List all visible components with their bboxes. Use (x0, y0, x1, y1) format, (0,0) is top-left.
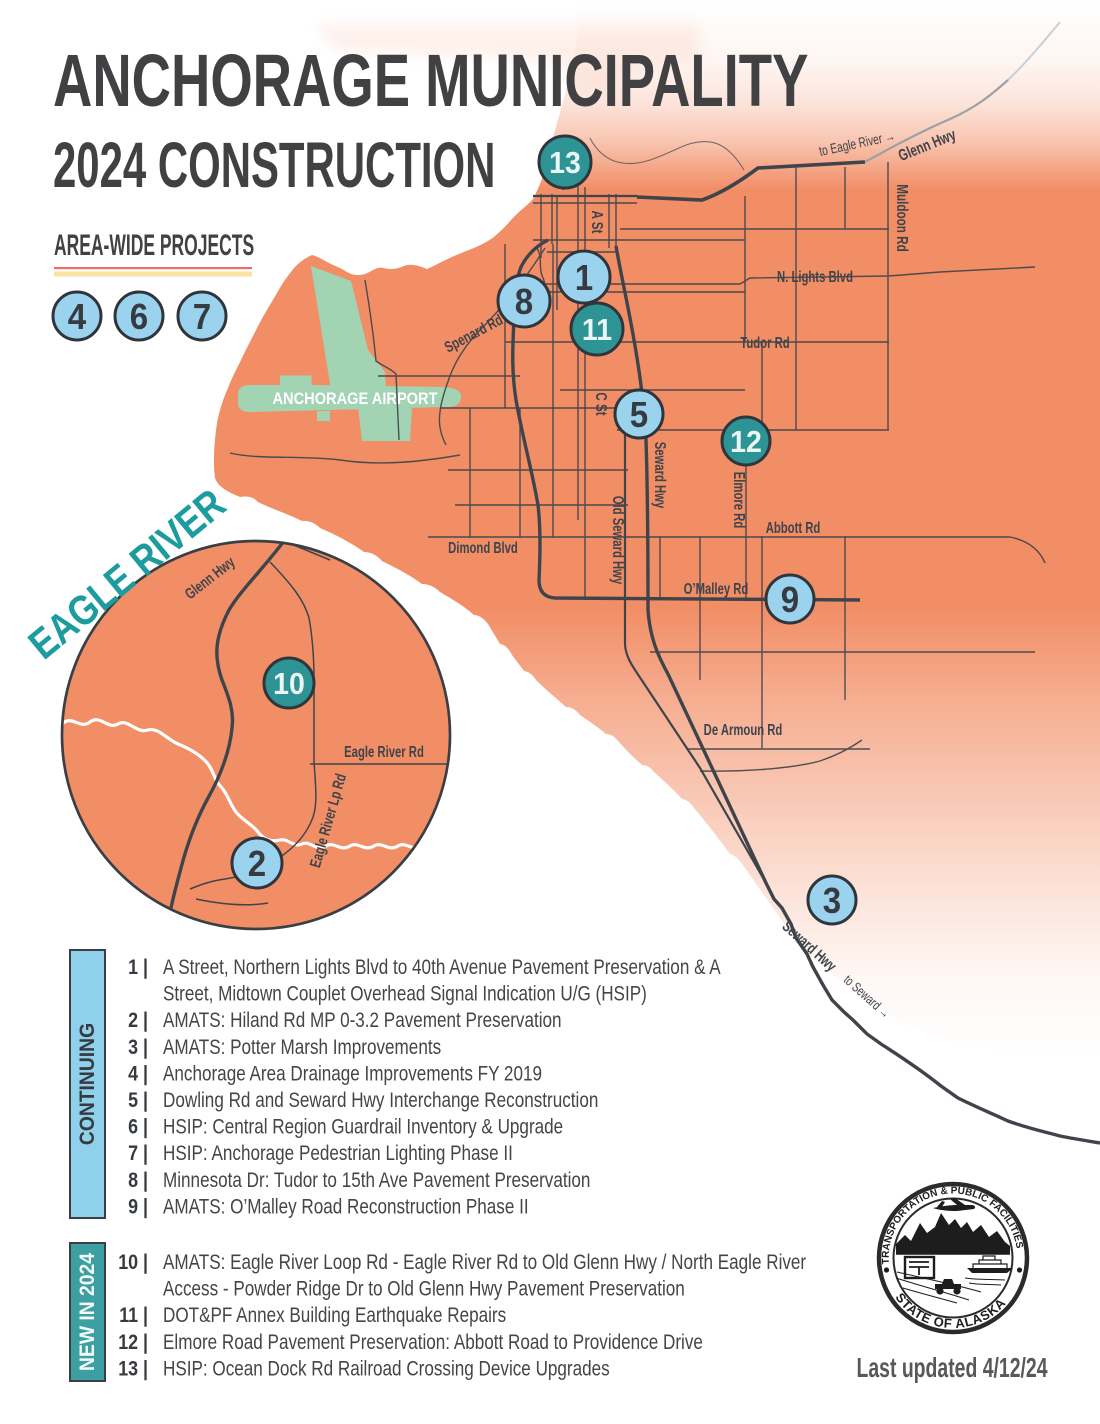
svg-text:Muldoon Rd: Muldoon Rd (894, 184, 912, 251)
svg-text:HSIP: Central Region Guardrail: HSIP: Central Region Guardrail Inventory… (163, 1116, 563, 1139)
svg-text:Minnesota Dr: Tudor to 15th Av: Minnesota Dr: Tudor to 15th Ave Pavement… (163, 1169, 590, 1192)
svg-text:O’Malley Rd: O’Malley Rd (684, 580, 749, 597)
svg-text:HSIP: Anchorage Pedestrian Lig: HSIP: Anchorage Pedestrian Lighting Phas… (163, 1143, 513, 1166)
svg-text:HSIP: Ocean Dock Rd Railroad C: HSIP: Ocean Dock Rd Railroad Crossing De… (163, 1358, 610, 1381)
svg-text:ANCHORAGE AIRPORT: ANCHORAGE AIRPORT (272, 390, 437, 408)
svg-text:1 |: 1 | (128, 956, 148, 980)
svg-text:2 |: 2 | (128, 1009, 148, 1033)
svg-text:9 |: 9 | (128, 1195, 148, 1219)
svg-text:12 |: 12 | (118, 1330, 148, 1354)
svg-text:Dimond Blvd: Dimond Blvd (448, 539, 518, 556)
svg-text:7: 7 (193, 298, 211, 338)
svg-text:6 |: 6 | (128, 1115, 148, 1139)
svg-text:13: 13 (549, 146, 581, 180)
svg-text:Access - Powder Ridge Dr to Ol: Access - Powder Ridge Dr to Old Glenn Hw… (163, 1278, 685, 1301)
svg-text:AMATS: Hiland Rd MP 0-3.2 Pave: AMATS: Hiland Rd MP 0-3.2 Pavement Prese… (163, 1010, 562, 1033)
svg-text:1: 1 (575, 259, 593, 299)
svg-text:De Armoun Rd: De Armoun Rd (704, 721, 783, 738)
svg-text:C St: C St (593, 392, 611, 416)
svg-text:A St: A St (589, 211, 607, 234)
svg-text:AMATS: Eagle River Loop Rd - E: AMATS: Eagle River Loop Rd - Eagle River… (163, 1251, 807, 1274)
svg-text:3: 3 (823, 882, 841, 922)
svg-text:4: 4 (68, 298, 87, 338)
svg-text:12: 12 (730, 425, 762, 459)
svg-text:9: 9 (781, 581, 799, 621)
svg-text:CONTINUING: CONTINUING (76, 1023, 99, 1145)
svg-text:4 |: 4 | (128, 1062, 148, 1086)
svg-text:Tudor Rd: Tudor Rd (740, 334, 789, 351)
svg-text:Eagle River Rd: Eagle River Rd (344, 743, 424, 760)
svg-text:Old Seward Hwy: Old Seward Hwy (610, 496, 627, 585)
svg-text:Dowling Rd and Seward Hwy Inte: Dowling Rd and Seward Hwy Interchange Re… (163, 1089, 598, 1112)
svg-text:5: 5 (630, 396, 648, 436)
svg-text:A Street, Northern Lights Blvd: A Street, Northern Lights Blvd to 40th A… (163, 956, 721, 979)
svg-text:Abbott Rd: Abbott Rd (766, 519, 821, 536)
svg-text:11: 11 (582, 313, 612, 347)
svg-text:Street, Midtown Couplet Overhe: Street, Midtown Couplet Overhead Signal … (163, 983, 647, 1006)
svg-text:2024 CONSTRUCTION: 2024 CONSTRUCTION (53, 130, 495, 201)
svg-text:7 |: 7 | (128, 1142, 148, 1166)
svg-text:Seward Hwy: Seward Hwy (652, 442, 669, 509)
svg-text:N. Lights Blvd: N. Lights Blvd (777, 268, 853, 285)
svg-text:10: 10 (273, 667, 305, 701)
svg-text:Last updated 4/12/24: Last updated 4/12/24 (857, 1353, 1048, 1384)
svg-text:AREA-WIDE PROJECTS: AREA-WIDE PROJECTS (54, 229, 254, 262)
svg-text:8 |: 8 | (128, 1168, 148, 1192)
svg-text:ANCHORAGE MUNICIPALITY: ANCHORAGE MUNICIPALITY (53, 39, 808, 122)
svg-text:Elmore Rd: Elmore Rd (731, 472, 748, 528)
svg-text:DOT&PF Annex Building Earthqua: DOT&PF Annex Building Earthquake Repairs (163, 1305, 506, 1328)
svg-text:10 |: 10 | (118, 1251, 148, 1275)
svg-text:3 |: 3 | (128, 1035, 148, 1059)
svg-text:NEW IN 2024: NEW IN 2024 (76, 1252, 99, 1371)
svg-text:AMATS: Potter Marsh Improvemen: AMATS: Potter Marsh Improvements (163, 1036, 441, 1059)
svg-text:Elmore Road Pavement Preservat: Elmore Road Pavement Preservation: Abbot… (163, 1331, 703, 1354)
svg-text:6: 6 (130, 298, 148, 338)
svg-text:8: 8 (515, 283, 533, 323)
svg-text:5 |: 5 | (128, 1089, 148, 1113)
svg-text:11 |: 11 | (119, 1304, 148, 1328)
svg-text:AMATS: O’Malley Road Reconstru: AMATS: O’Malley Road Reconstruction Phas… (163, 1196, 529, 1219)
svg-text:2: 2 (248, 845, 266, 885)
svg-text:Anchorage Area Drainage Improv: Anchorage Area Drainage Improvements FY … (163, 1063, 542, 1086)
svg-text:13 |: 13 | (118, 1357, 148, 1381)
